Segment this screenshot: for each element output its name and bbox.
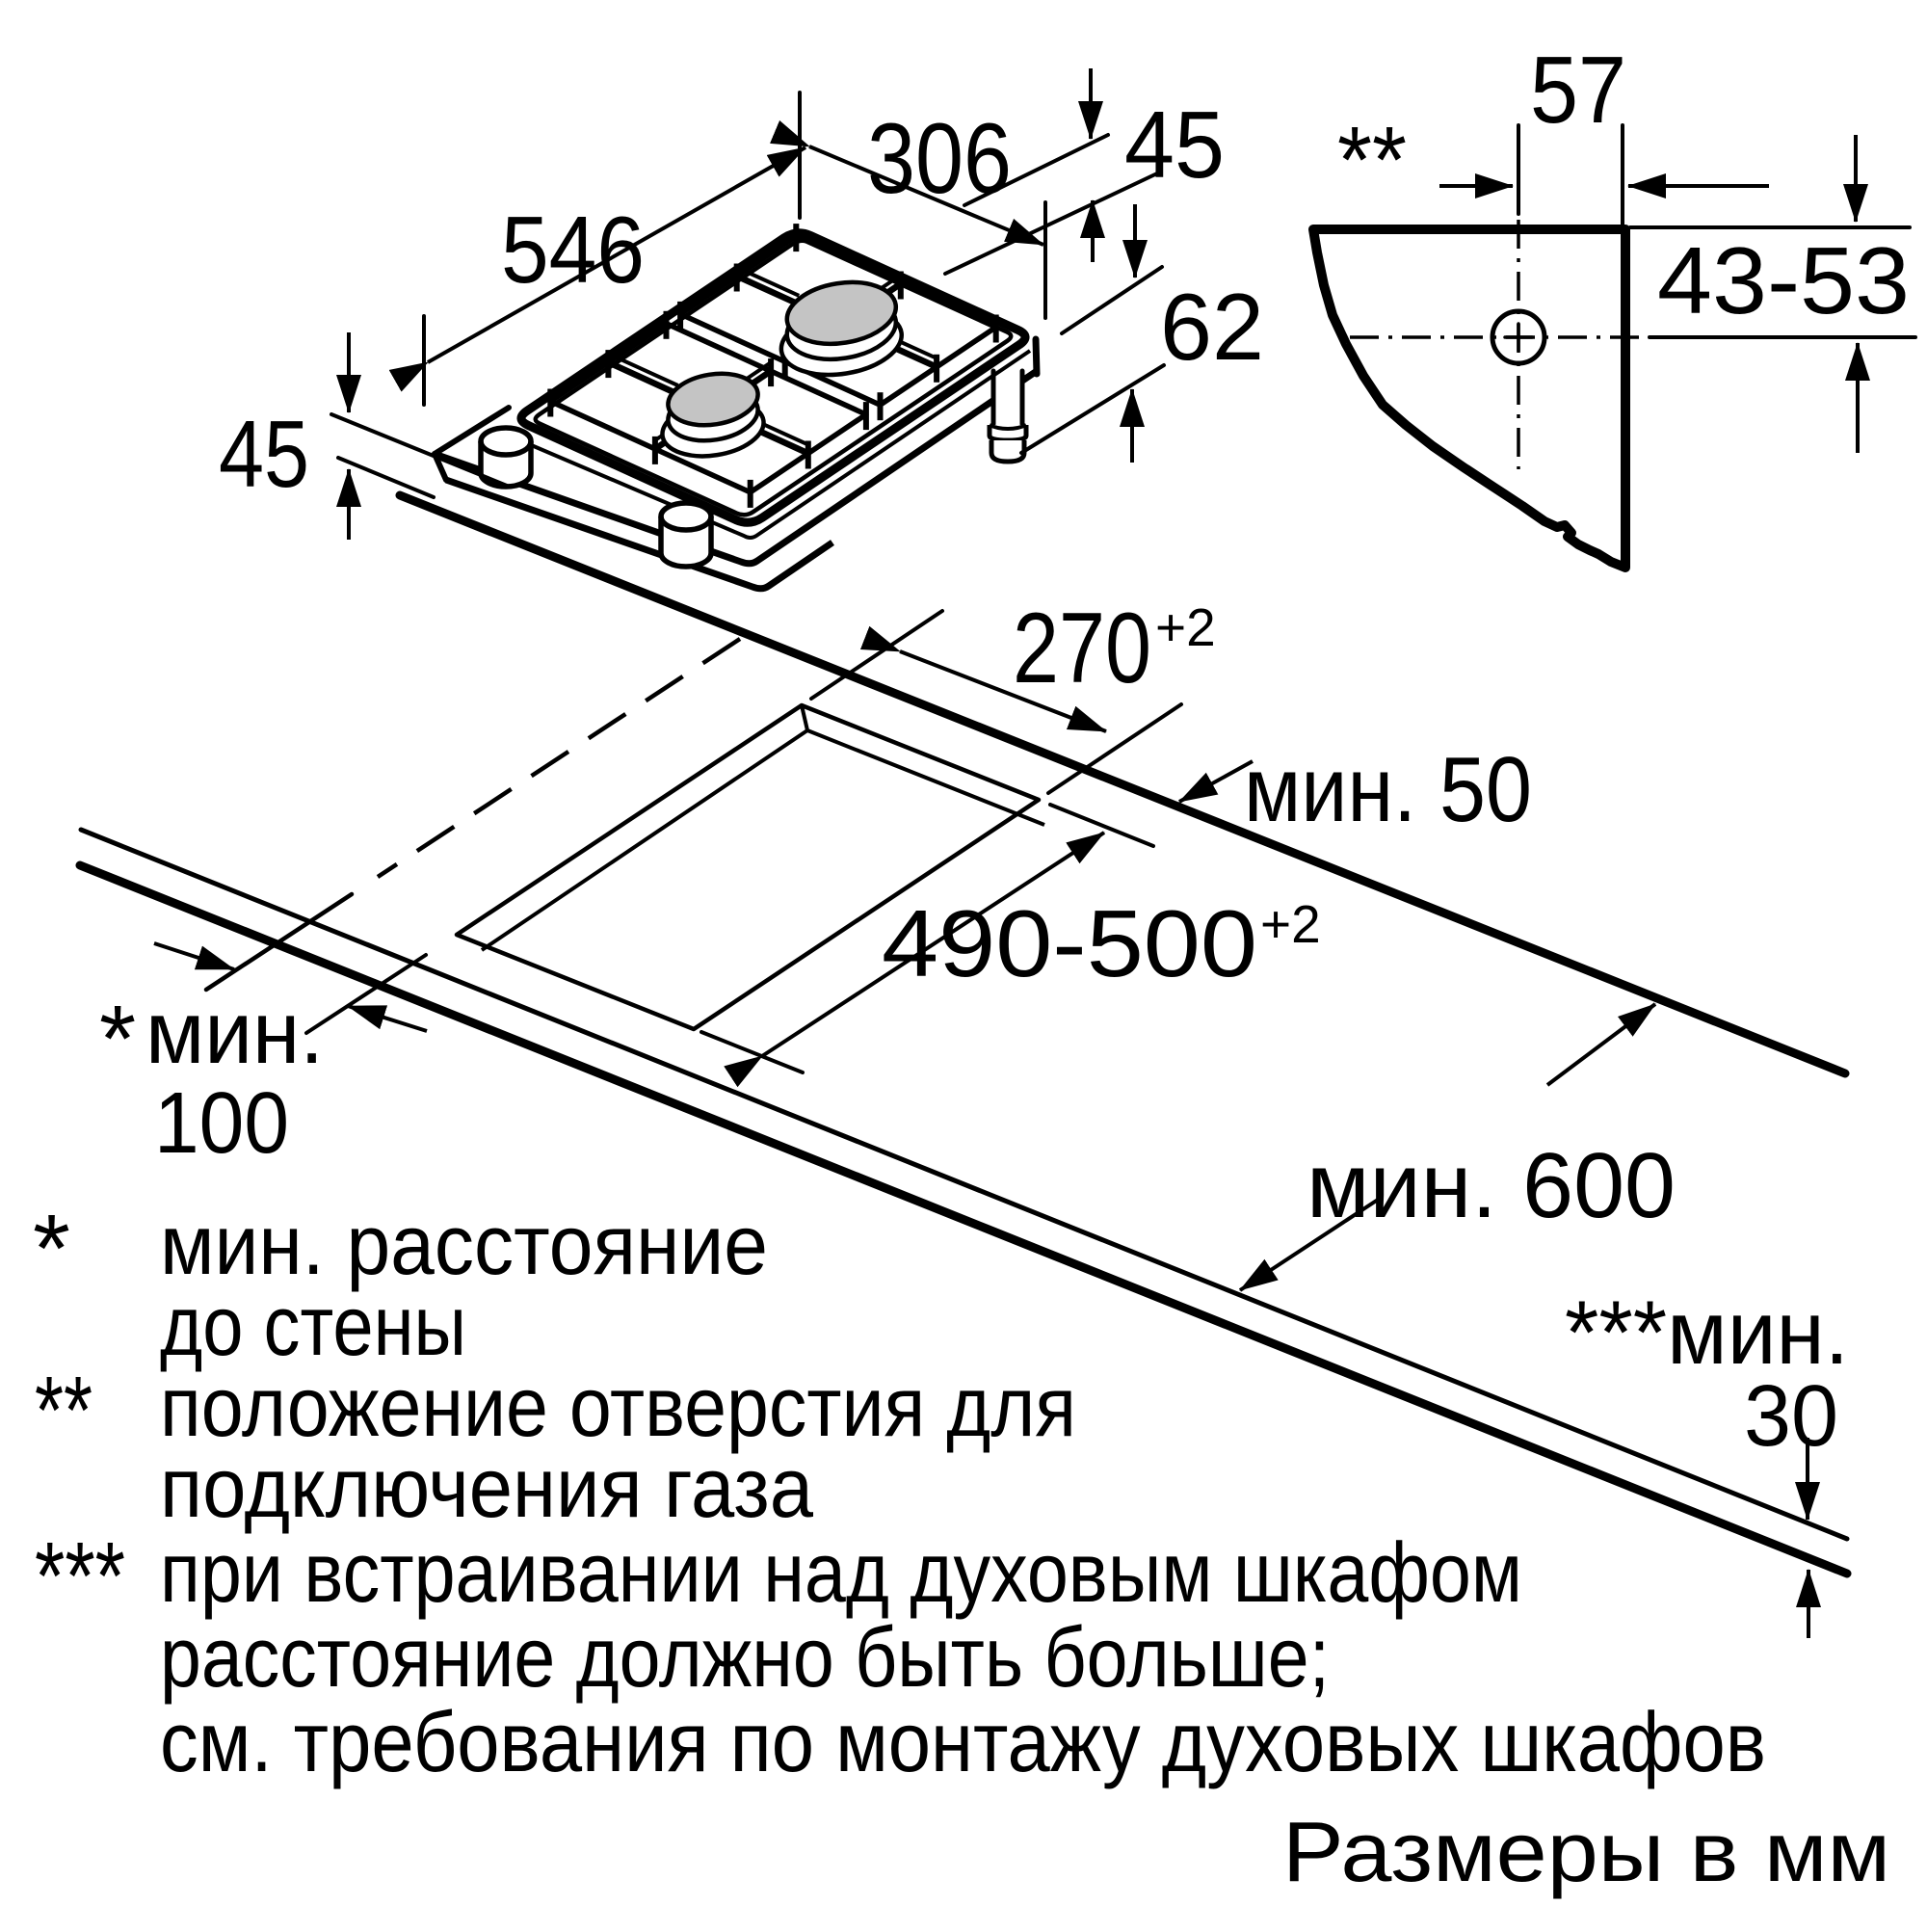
- svg-text:мин. 600: мин. 600: [1307, 1134, 1676, 1237]
- svg-text:***: ***: [35, 1522, 125, 1630]
- svg-text:546: 546: [501, 197, 645, 303]
- svg-text:расстояние должно быть больше;: расстояние должно быть больше;: [160, 1609, 1330, 1705]
- svg-text:Размеры в мм: Размеры в мм: [1282, 1804, 1890, 1899]
- svg-text:подключения газа: подключения газа: [160, 1440, 813, 1535]
- svg-text:43-53: 43-53: [1657, 227, 1910, 333]
- svg-text:62: 62: [1160, 274, 1264, 380]
- svg-text:см. требования по монтажу духо: см. требования по монтажу духовых шкафов: [160, 1694, 1766, 1789]
- svg-text:45: 45: [1124, 92, 1225, 198]
- svg-text:45: 45: [219, 401, 309, 507]
- svg-text:270: 270: [1013, 593, 1151, 704]
- svg-text:*: *: [33, 1195, 70, 1303]
- svg-text:+2: +2: [1260, 894, 1321, 954]
- svg-text:30: 30: [1744, 1368, 1838, 1465]
- svg-text:*: *: [99, 986, 136, 1092]
- svg-text:**: **: [35, 1357, 92, 1465]
- svg-text:100: 100: [154, 1075, 289, 1172]
- svg-text:**: **: [1337, 107, 1407, 213]
- svg-text:306: 306: [867, 103, 1012, 215]
- svg-text:+2: +2: [1155, 597, 1216, 657]
- svg-text:57: 57: [1530, 37, 1626, 143]
- svg-text:мин. 50: мин. 50: [1244, 738, 1532, 841]
- svg-text:при встраивании над духовым шк: при встраивании над духовым шкафом: [160, 1524, 1522, 1620]
- svg-text:490-500: 490-500: [882, 890, 1257, 996]
- svg-text:мин.: мин.: [145, 984, 324, 1082]
